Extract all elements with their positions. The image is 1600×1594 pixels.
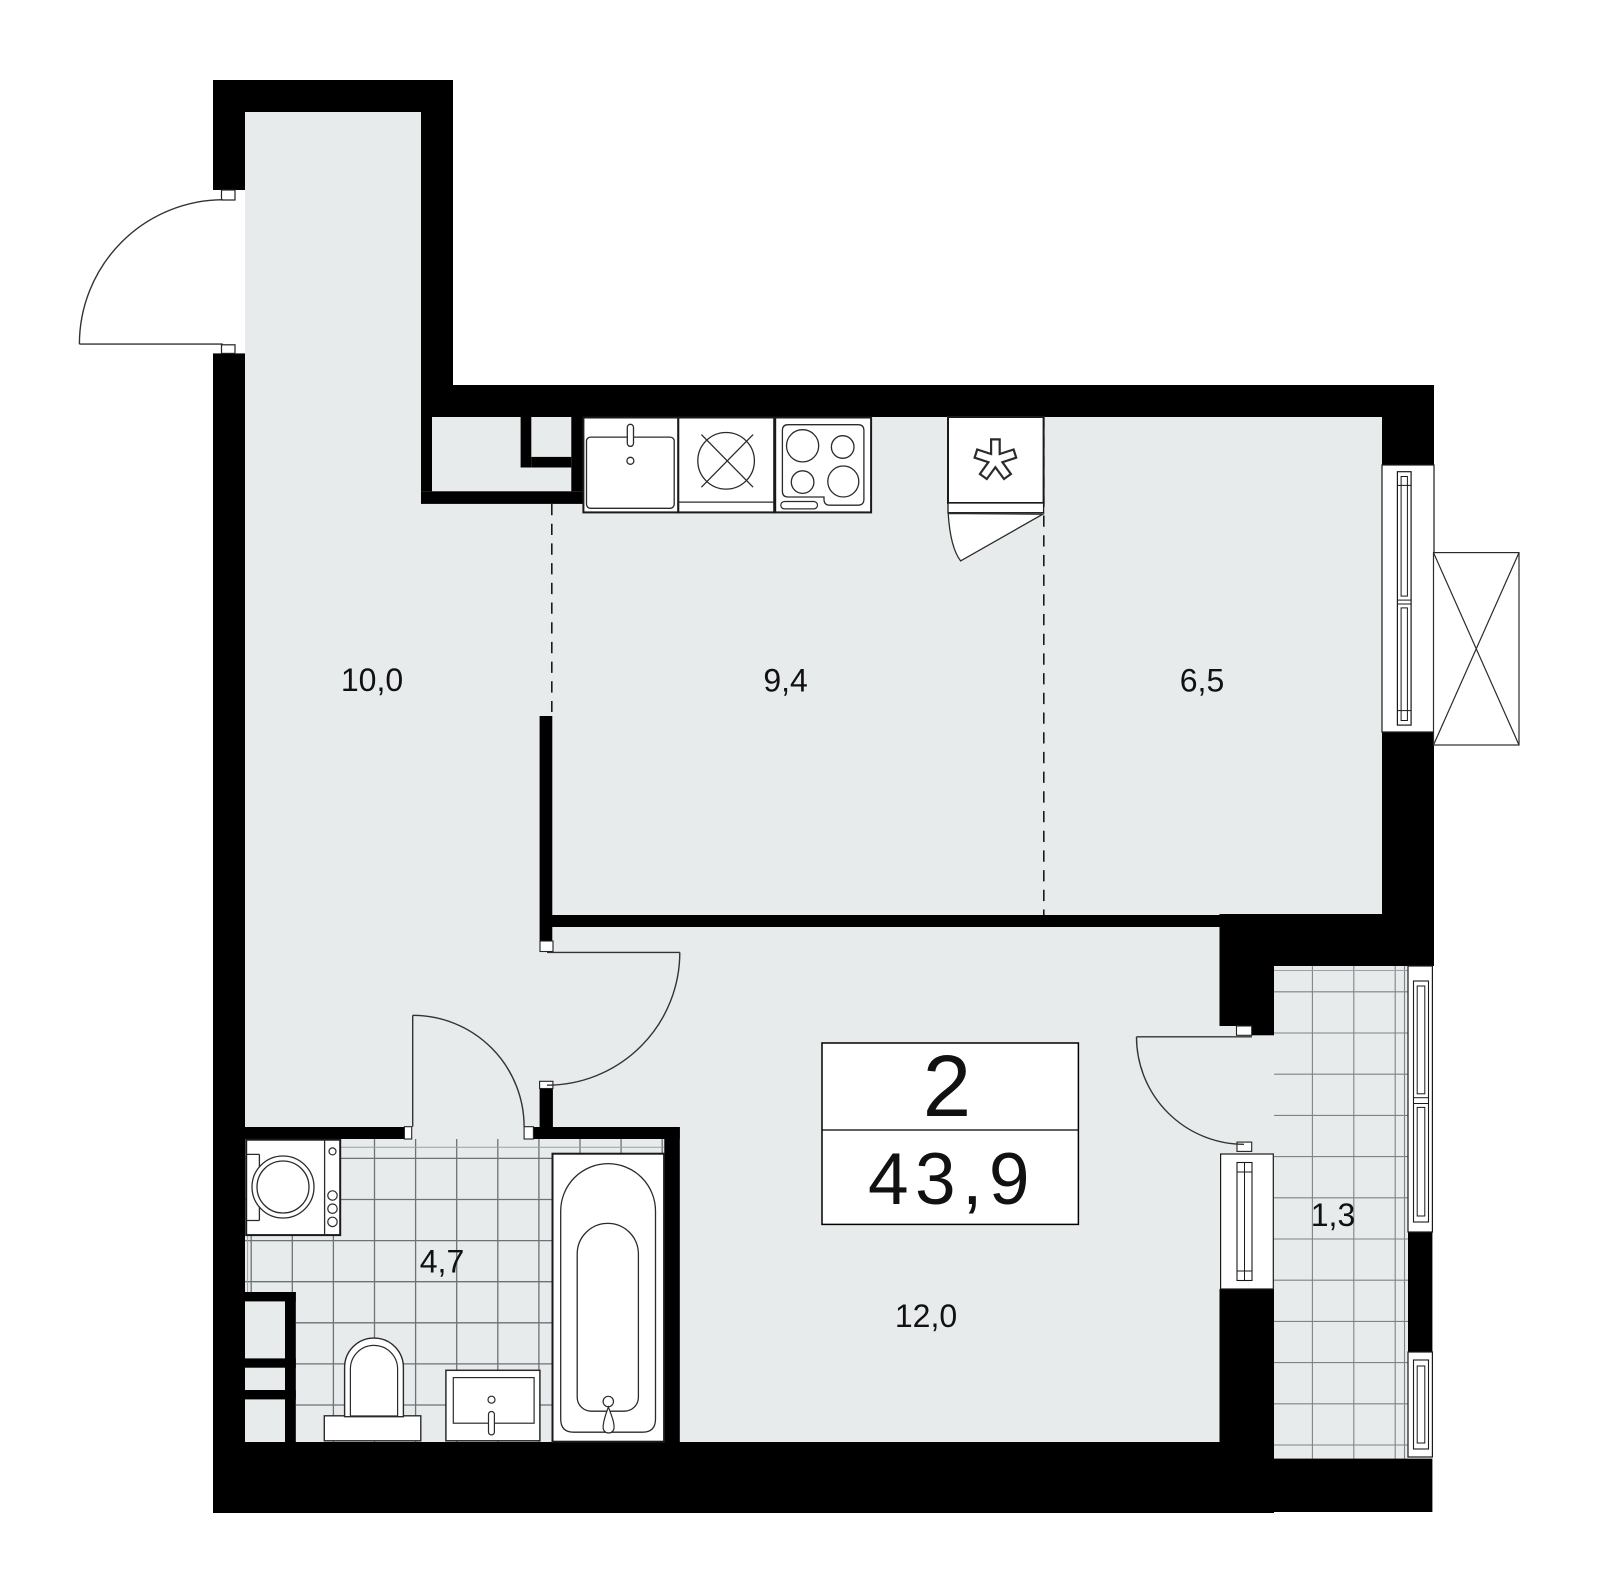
- svg-text:43,9: 43,9: [868, 1139, 1036, 1220]
- svg-text:12,0: 12,0: [895, 1298, 957, 1334]
- svg-text:1,3: 1,3: [1311, 1197, 1355, 1233]
- svg-text:6,5: 6,5: [1180, 663, 1224, 699]
- svg-text:4,7: 4,7: [420, 1244, 464, 1280]
- svg-text:2: 2: [923, 1038, 971, 1135]
- svg-text:9,4: 9,4: [763, 663, 807, 699]
- svg-text:10,0: 10,0: [341, 662, 403, 698]
